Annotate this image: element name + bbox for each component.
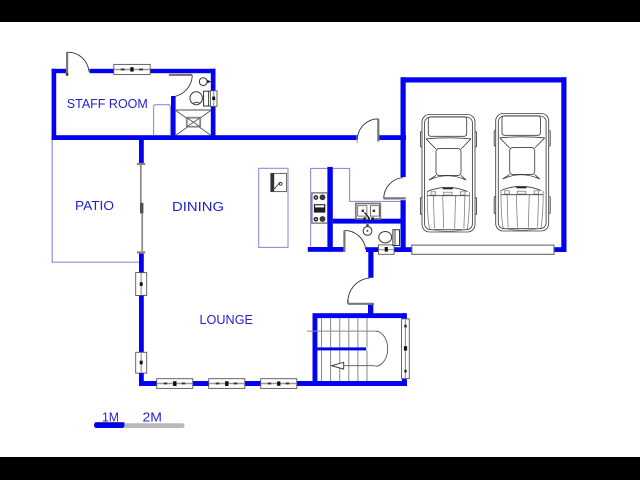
svg-text:STAFF ROOM: STAFF ROOM bbox=[67, 97, 148, 111]
svg-text:DINING: DINING bbox=[172, 200, 224, 214]
svg-text:2M: 2M bbox=[143, 410, 163, 424]
svg-text:1M: 1M bbox=[102, 410, 119, 424]
svg-text:LOUNGE: LOUNGE bbox=[200, 313, 254, 327]
svg-text:PATIO: PATIO bbox=[75, 199, 114, 213]
